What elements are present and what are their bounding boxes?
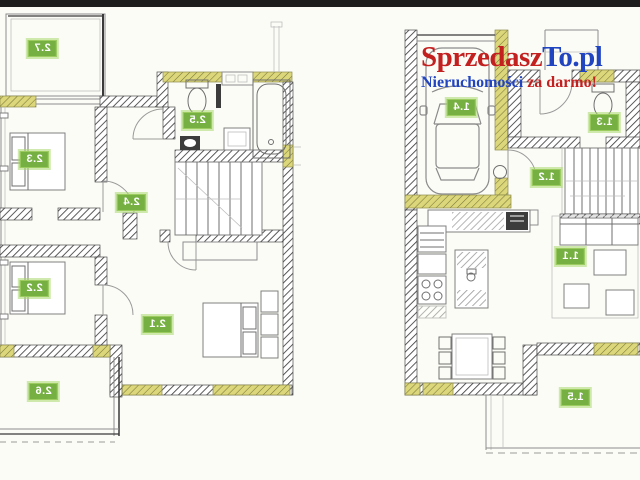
room-label-2-6: 2.6 — [29, 383, 58, 400]
stairs-icon-left — [175, 162, 262, 235]
room-label-1-4: 1.4 — [447, 99, 476, 116]
sofa-set-icon — [552, 216, 638, 318]
cabinet-icon — [418, 254, 446, 274]
room-label-2-5: 2.5 — [183, 112, 212, 129]
floor-plan-right — [405, 30, 640, 453]
room-label-1-3: 1.3 — [590, 114, 619, 131]
column-icon — [494, 166, 507, 179]
watermark-site-name-part2: To.pl — [542, 41, 602, 73]
bed-icon-2-1 — [203, 291, 278, 358]
radiator-icon — [216, 84, 221, 108]
room-label-2-7: 2.7 — [28, 40, 57, 57]
watermark-slogan-part1: Nieruchomości — [421, 74, 527, 91]
room-label-1-2: 1.2 — [532, 169, 561, 186]
stove-icon — [418, 276, 446, 304]
room-label-2-3: 2.3 — [20, 151, 49, 168]
floor-plan-left — [0, 14, 301, 442]
stairs-icon-right — [562, 148, 638, 214]
room-label-1-5: 1.5 — [561, 389, 590, 406]
room-label-2-2: 2.2 — [20, 280, 49, 297]
dining-table-icon — [439, 334, 505, 379]
room-label-2-4: 2.4 — [117, 194, 146, 211]
fridge-icon — [418, 226, 446, 252]
vent-shaft — [222, 72, 253, 85]
watermark-site-name: SprzedaszTo.pl — [421, 42, 602, 73]
kitchen-island-icon — [455, 250, 488, 308]
toilet-icon-bathroom — [186, 80, 208, 114]
room-label-2-1: 2.1 — [143, 316, 172, 333]
watermark: SprzedaszTo.pl Nieruchomości za darmo! — [421, 42, 602, 92]
room-label-1-1: 1.1 — [556, 248, 585, 265]
watermark-site-name-part1: Sprzedasz — [421, 41, 542, 73]
balcony-2-6 — [0, 357, 119, 442]
sink-icon-bathroom — [180, 136, 200, 150]
counter-icon — [418, 306, 446, 318]
watermark-slogan-part2: za darmo! — [527, 74, 597, 91]
floorplan-image: 2.7 2.3 2.4 2.5 2.2 2.1 2.6 1.4 1.3 1.2 … — [0, 0, 640, 480]
watermark-slogan: Nieruchomości za darmo! — [421, 74, 602, 92]
washer-icon — [224, 128, 250, 150]
